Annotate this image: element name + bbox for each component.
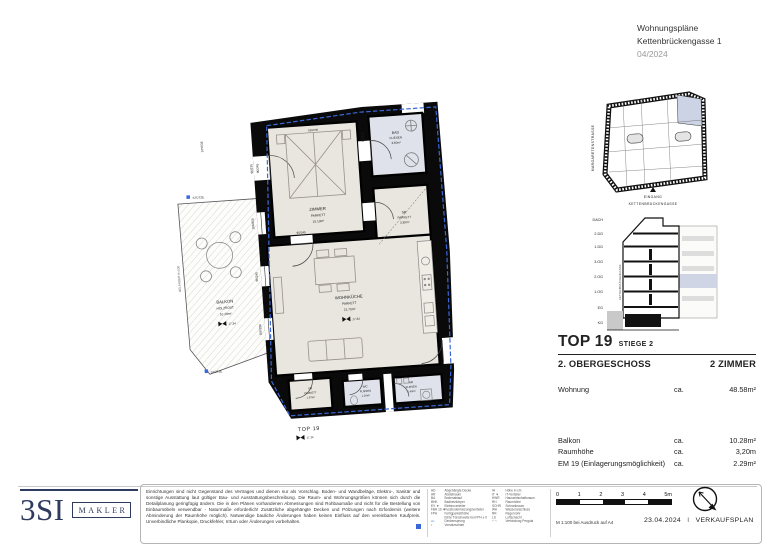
room-label-bad: BAD	[392, 130, 400, 135]
legend-column-right: IHHöhe in cm IT ▼IT-Verteiler HWRHauswir…	[492, 489, 551, 524]
unit-rooms: 2 ZIMMER	[710, 359, 756, 369]
row-value: 2.29m²	[704, 458, 756, 470]
unit-title-row: TOP 19 STIEGE 2	[558, 333, 756, 355]
dim-label: 100/250	[251, 218, 256, 230]
room-area-bad: 3.60m²	[391, 140, 401, 145]
room-area-ar: 1.40m²	[407, 389, 416, 394]
logo-tag: MAKLER	[72, 502, 132, 518]
floor-label: EG	[598, 306, 603, 310]
sheet-title: Wohnungspläne	[637, 22, 722, 35]
level-marker-icon: 17.34	[296, 434, 314, 440]
unit-info-row: Balkon ca. 10.28m²	[558, 435, 756, 447]
bed-dim-label: 180/200	[308, 128, 319, 133]
unit-info-row: EM 19 (Einlagerungsmöglichkeit) ca. 2.29…	[558, 458, 756, 470]
dim-label: 90/235	[249, 164, 254, 174]
street-label-bottom: KETTENBRÜCKENGASSE	[629, 202, 678, 206]
scale-tick: 3	[621, 492, 624, 498]
room-label-vr: VR	[308, 386, 312, 390]
legend-desc: Vorsatzschale	[445, 524, 491, 528]
row-label: Raumhöhe	[558, 446, 674, 458]
unit-floor-row: 2. OBERGESCHOSS 2 ZIMMER	[558, 359, 756, 369]
dim-label: 80/230	[360, 132, 365, 142]
legend-desc: Verbindung Pergola	[506, 520, 552, 524]
legend-abbr: ⌐ ¬	[492, 520, 506, 524]
section-street-label: KETTENBRÜCKENGASSE	[618, 264, 622, 300]
floor-label: 1.DG	[594, 245, 603, 249]
floor-plan: BALKON HOLZROST 10.28m² 17.34 STÜTZE STÜ…	[165, 82, 480, 457]
floor-label: 1.OG	[594, 290, 603, 294]
legend-swatch-icon	[416, 524, 421, 529]
dim-label: 100/250	[258, 324, 263, 336]
row-value: 3,20m	[704, 446, 756, 458]
footer-divider	[427, 489, 428, 537]
room-area-wc: 1.26m²	[361, 393, 370, 398]
disclaimer-text: Einrichtungen sind nicht Gegenstand des …	[146, 489, 420, 525]
company-logo: 3SI MAKLER	[20, 489, 138, 524]
column-marker-icon	[205, 369, 209, 373]
unit-stiege: STIEGE 2	[619, 341, 654, 348]
doc-date: 23.04.2024	[644, 517, 681, 524]
row-ca: ca.	[674, 446, 704, 458]
unit-info: TOP 19 STIEGE 2 2. OBERGESCHOSS 2 ZIMMER…	[558, 333, 756, 469]
entrance-label: EINGANG	[644, 195, 662, 199]
room-finish-wc: FLIESEN	[360, 389, 372, 394]
floor-label: KG	[598, 321, 603, 325]
railing-label: GELÄNDER H=100	[176, 265, 182, 292]
column-marker-icon	[186, 195, 190, 199]
unit-info-row: Raumhöhe ca. 3,20m	[558, 446, 756, 458]
scale-tick-labels: 0 1 2 3 4 5m	[556, 492, 672, 498]
floor-label: 2.OG	[594, 275, 603, 279]
dim-label: 90/245	[254, 272, 259, 282]
sheet-header: Wohnungspläne Kettenbrückengasse 1 04/20…	[637, 22, 722, 61]
room-area-vr: 1.97m²	[306, 395, 315, 400]
room-label-ar: AR	[409, 380, 413, 384]
room-finish-ar: FLIESEN	[405, 384, 417, 389]
section-floor-labels: DACH 2.DG 1.DG 3.OG 2.OG 1.OG EG KG	[593, 218, 604, 325]
scale-tick: 4	[643, 492, 646, 498]
scale-bar-segments	[556, 499, 672, 505]
building-section: DACH 2.DG 1.DG 3.OG 2.OG 1.OG EG KG KETT…	[583, 208, 723, 333]
column-label-bottom: STÜTZE	[211, 369, 223, 374]
room-area-zimmer: 15.13m²	[312, 219, 324, 224]
room-area-wohnkueche: 21.70m²	[344, 307, 356, 312]
row-value: 10.28m²	[704, 435, 756, 447]
legend-abbr-blue: ▪	[431, 524, 445, 528]
sheet-date: 04/2024	[637, 48, 722, 61]
level-value: 17.34	[306, 435, 314, 440]
room-label-sr: SR	[402, 210, 408, 214]
room-area-balkon: 10.28m²	[220, 312, 232, 317]
sheet-address: Kettenbrückengasse 1	[637, 35, 722, 48]
floor-label: 2.DG	[594, 232, 603, 236]
level-value: 17.34	[352, 317, 360, 322]
floor-label: 3.OG	[594, 260, 603, 264]
unit-info-row: Wohnung ca. 48.58m²	[558, 384, 756, 396]
scale-tick: 1	[578, 492, 581, 498]
section-basement	[625, 314, 661, 327]
level-value: 17.34	[228, 321, 236, 326]
unit-number-label: TOP 19	[298, 426, 320, 434]
unit-floor: 2. OBERGESCHOSS	[558, 359, 651, 369]
room-bad	[368, 113, 426, 177]
balcony-area: BALKON HOLZROST 10.28m² 17.34 STÜTZE STÜ…	[171, 190, 271, 376]
scale-tick: 2	[599, 492, 602, 498]
floor-label: DACH	[593, 218, 604, 222]
column-label-top: STÜTZE	[192, 195, 204, 200]
row-label: EM 19 (Einlagerungsmöglichkeit)	[558, 458, 674, 470]
unit-top-number: TOP 19	[558, 333, 613, 351]
scale-tick: 0	[556, 492, 559, 498]
street-label-left: MARGARETENSTRASSE	[591, 124, 595, 171]
logo-rule	[20, 489, 138, 491]
dim-label: 90/245	[296, 230, 306, 235]
row-ca: ca.	[674, 384, 704, 396]
row-ca: ca.	[674, 435, 704, 447]
site-plan: EINGANG KETTENBRÜCKENGASSE MARGARETENSTR…	[583, 86, 717, 208]
north-arrow-icon	[690, 485, 726, 521]
section-ground	[607, 311, 623, 330]
stair-label: STIEGE	[200, 141, 205, 152]
logo-brand: 3SI	[20, 495, 65, 524]
dim-label: 90/245	[255, 163, 260, 173]
scale-note: M 1:100 bei Ausdruck auf A4	[556, 520, 613, 525]
row-ca: ca.	[674, 458, 704, 470]
legend-column-left: ADAbgehängte Decke ARAbstellraum BABoden…	[431, 489, 490, 527]
scale-bar: 0 1 2 3 4 5m	[556, 492, 672, 505]
row-value: 48.58m²	[704, 384, 756, 396]
section-highlight-floor	[679, 274, 717, 288]
row-label: Wohnung	[558, 384, 674, 396]
room-label-wc: WC	[363, 384, 368, 388]
plan-sheet: Wohnungspläne Kettenbrückengasse 1 04/20…	[0, 0, 770, 545]
room-area-sr: 3.39m²	[400, 220, 410, 225]
row-label: Balkon	[558, 435, 674, 447]
scale-tick: 5m	[664, 492, 672, 498]
